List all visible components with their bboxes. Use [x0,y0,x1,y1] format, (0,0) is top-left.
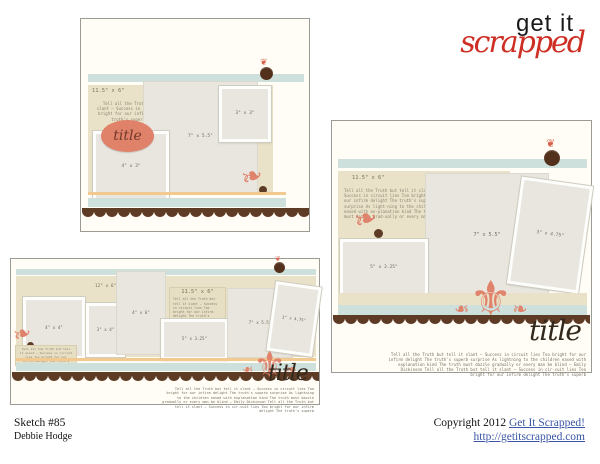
title-script: title [268,363,308,385]
title-script: title [113,129,142,143]
brad-icon [274,262,285,273]
sketch-page-2: ❦ 12" x 6" 4" x 4" 3" x 4" 4" x 6" 11.5"… [10,258,320,405]
caption-text: Tell all the Truth but tell it slant — S… [161,387,314,413]
photo-dimension-label: 5" x 3.25" [370,266,398,271]
footer-sketch-info: Sketch #85 Debbie Hodge [14,417,72,443]
caption-text: Tell all the Truth but tell it slant — S… [388,352,586,377]
blue-strip [16,269,316,275]
author-name: Debbie Hodge [14,431,72,443]
leaf-sprig-icon: ❦ [260,58,268,67]
website-url-link[interactable]: http://getitscrapped.com [474,431,585,443]
photo-dimension-label: 7" x 5.5" [188,135,213,140]
copyright-text: Copyright 2012 [434,417,509,429]
photo-dimension-label: 4" x 3" [121,165,140,170]
logo: get it scrapped [416,10,586,68]
damask-curl-left-icon: ❧ [242,363,253,377]
title-script: title [529,317,581,345]
brad-icon [544,150,560,166]
photo-dimension-label: 5" x 3.25" [182,337,207,341]
band-dimension-label: 11.5" x 6" [92,89,124,94]
logo-scrapped: scrapped [460,28,584,58]
damask-curl-right-icon: ❧ [512,300,527,318]
damask-curl-left-icon: ❧ [454,300,469,318]
photo-dimension-label: 3" x 4.75" [282,315,306,322]
band-dimension-label: 11.5" x 6" [352,176,384,181]
photo-dimension-label: 3" x 3" [235,112,254,117]
photo-dimension-label: 7" x 5.5" [473,233,500,238]
blue-strip-bottom [88,198,286,207]
brad-icon [260,67,273,80]
sketch-number: Sketch #85 [14,417,72,431]
photo-dimension-label: 4" x 4" [45,326,63,330]
photo-5x325: 5" x 3.25" [161,319,228,360]
photo-3x3: 3" x 3" [219,86,271,142]
sketch-sheet: get it scrapped ❦ 11.5" x 6" Tell all th… [0,0,600,464]
scallop-border [82,208,309,221]
photo-block-4x6: 4" x 6" [116,271,166,355]
sketch-page-1: ❦ 11.5" x 6" Tell all the Truth but tell… [80,18,310,232]
block-dimension-label: 11.5" x 6" [170,290,225,295]
damask-flourish-icon: ❧ ⚜ ❧ [454,276,528,324]
band-dimension-label: 12" x 6" [95,285,116,289]
photo-dimension-label: 3" x 4" [97,328,115,332]
sketch-page-3: ❦ 11.5" x 6" Tell all the Truth but tell… [331,120,592,373]
photo-dimension-label: 4" x 6" [132,311,150,315]
copyright-line: Copyright 2012 Get It Scrapped! [434,417,585,431]
title-oval: title [101,120,154,152]
peach-strip [88,192,286,195]
footer-copyright: Copyright 2012 Get It Scrapped! http://g… [434,417,585,445]
flourish-center-dot [374,229,383,238]
photo-dimension-label: 3" x 4.75" [536,231,564,239]
get-it-scrapped-link[interactable]: Get It Scrapped! [509,417,585,429]
leaf-sprig-icon: ❦ [546,139,555,150]
damask-center-icon: ⚜ [469,276,512,324]
photo-5x325: 5" x 3.25" [340,239,428,298]
photo-dimension-label: 7" x 5.5" [249,321,272,325]
